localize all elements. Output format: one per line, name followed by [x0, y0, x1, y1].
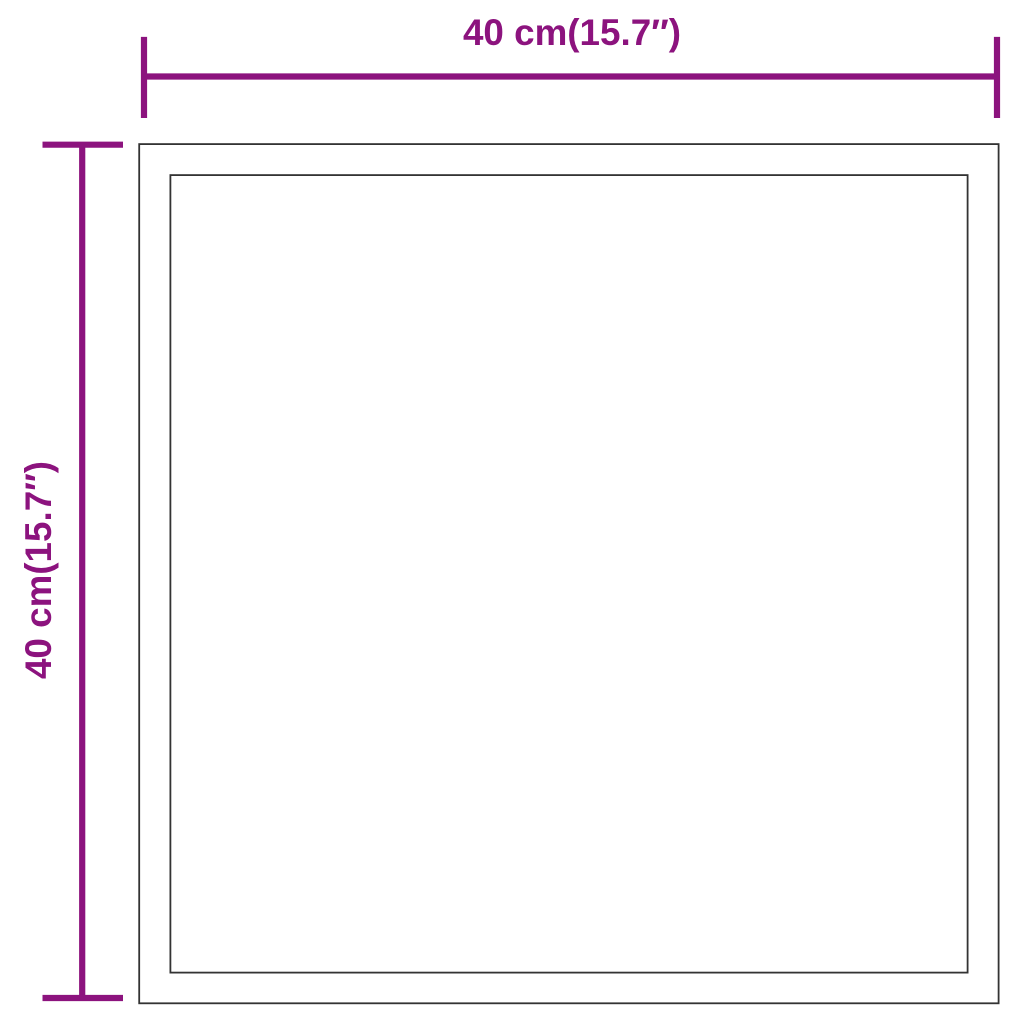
svg-text:40 cm(15.7″): 40 cm(15.7″)	[18, 461, 59, 679]
svg-text:40 cm(15.7″): 40 cm(15.7″)	[463, 12, 681, 53]
